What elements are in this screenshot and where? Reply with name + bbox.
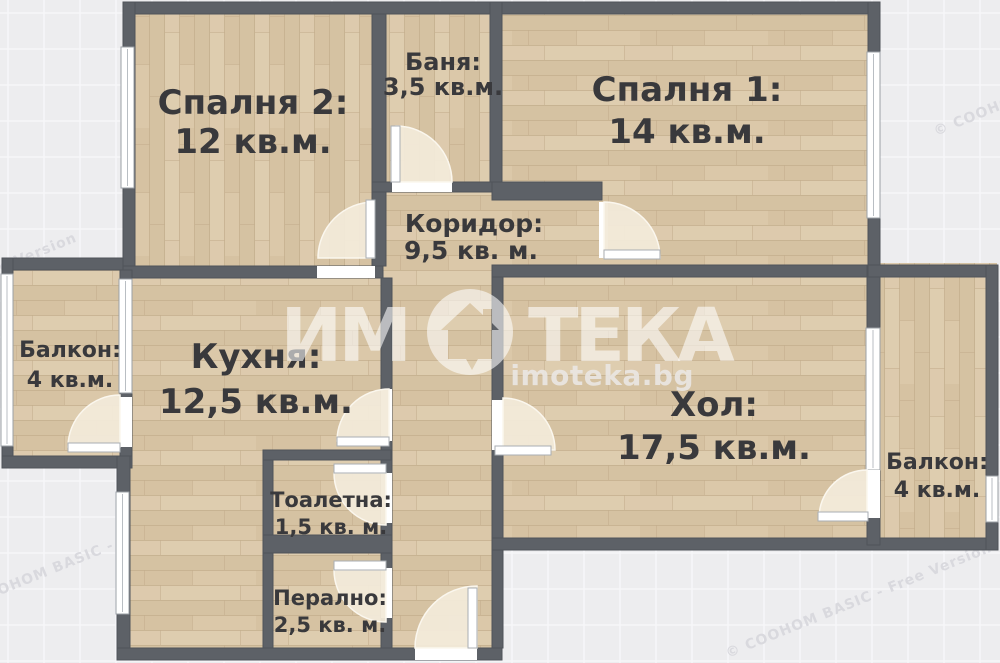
living-room-area: 17,5 кв.м. xyxy=(617,428,811,468)
bedroom2-label: Спалня 2: xyxy=(158,83,349,123)
toilet-area: 1,5 кв. м. xyxy=(275,515,388,539)
corridor-label: Коридор: xyxy=(405,209,543,238)
window-balcony-right xyxy=(986,476,998,522)
bathroom-area: 3,5 кв.м. xyxy=(383,73,503,101)
imoteka-logo-text-left: ИМ xyxy=(280,293,408,379)
wall xyxy=(492,182,602,200)
window-living-balcony xyxy=(866,328,880,470)
balcony-left-area: 4 кв.м. xyxy=(27,368,114,393)
wall xyxy=(263,450,391,460)
corridor-area: 9,5 кв. м. xyxy=(404,236,538,265)
window-bedroom1 xyxy=(867,52,880,218)
wall xyxy=(492,538,997,550)
balcony-right-label: Балкон: xyxy=(886,450,988,475)
window-bedroom2 xyxy=(121,47,134,188)
bedroom2-area: 12 кв.м. xyxy=(174,122,331,162)
wall xyxy=(2,456,132,468)
balcony-left-label: Балкон: xyxy=(19,338,121,363)
wall xyxy=(868,265,997,277)
window-balcony-left xyxy=(1,274,13,446)
balcony-right-area: 4 кв.м. xyxy=(894,478,981,503)
toilet-label: Тоалетна: xyxy=(270,488,392,512)
floor-plan-image: © COOHOM BASIC - Free Version © COOHOM B… xyxy=(0,0,1000,663)
window-kitchen-balcony xyxy=(119,279,132,393)
wall xyxy=(492,265,880,277)
bedroom1-area: 14 кв.м. xyxy=(608,112,765,152)
imoteka-website-text: imoteka.bg xyxy=(510,359,694,392)
bathroom-label: Баня: xyxy=(405,48,481,76)
wall xyxy=(2,258,123,270)
kitchen-area: 12,5 кв.м. xyxy=(159,382,353,422)
window-kitchen-left xyxy=(116,492,129,614)
laundry-label: Перално: xyxy=(273,586,387,610)
laundry-area: 2,5 кв. м. xyxy=(274,613,387,637)
bedroom1-label: Спалня 1: xyxy=(592,70,783,110)
